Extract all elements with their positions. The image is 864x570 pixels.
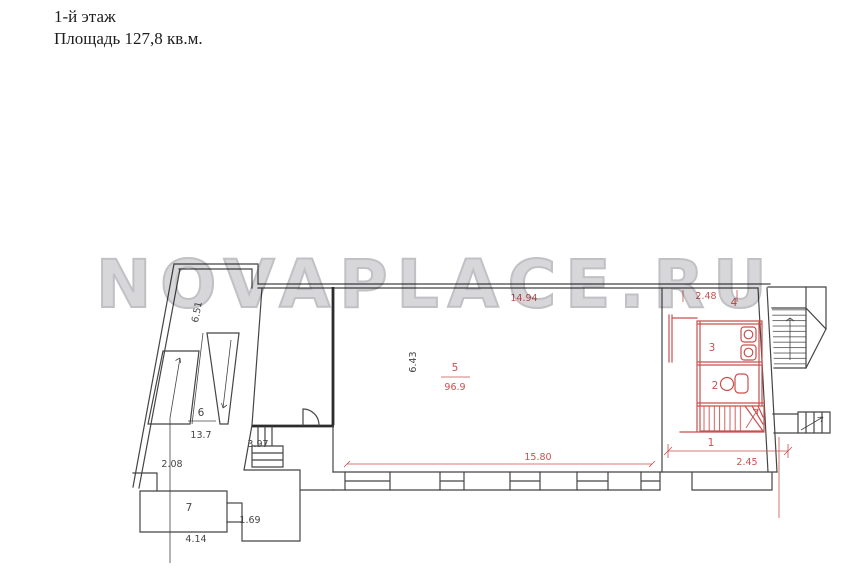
window — [440, 472, 464, 490]
window — [510, 472, 540, 490]
sink-icon — [741, 345, 756, 360]
door-arc — [303, 409, 319, 425]
window — [641, 472, 660, 490]
watermark: NOVAPLACE.RU — [96, 246, 768, 323]
stair-direction-arrow — [801, 417, 823, 430]
room-label: 7 — [186, 502, 193, 514]
window — [345, 472, 390, 490]
exterior-staircase — [768, 287, 830, 433]
window — [577, 472, 608, 490]
labels: 6.51 6.43 3.97 2.08 1.69 4.14 6 13.7 7 5… — [161, 291, 757, 545]
room-label: 2 — [712, 380, 719, 392]
dimension-label: 6.43 — [408, 351, 419, 372]
room-label: 3 — [709, 342, 716, 354]
room-label: 6 — [198, 407, 205, 419]
dimension-label: 4.14 — [185, 534, 206, 545]
dimension-label: 2.08 — [161, 459, 182, 470]
sink-icon — [741, 327, 756, 342]
dimension-label: 2.45 — [736, 457, 757, 468]
bottom-window-wall — [345, 472, 660, 490]
dimension-label: 15.80 — [524, 452, 551, 463]
dimension-label: 1.69 — [239, 515, 260, 526]
room-label: 5 — [452, 362, 459, 374]
room-area-label: 96.9 — [444, 382, 465, 393]
stair-direction-arrow-up — [170, 358, 181, 418]
stair-direction-arrow — [746, 409, 758, 428]
room-label: 1 — [708, 437, 715, 449]
room-7-outline — [140, 491, 227, 532]
left-staircase — [148, 333, 239, 424]
stair-direction-arrow-down — [222, 340, 232, 408]
dimension-label: 3.97 — [247, 439, 268, 450]
floor-plan-page: 1-й этаж Площадь 127,8 кв.м. — [0, 0, 864, 570]
red-interior-staircase — [700, 406, 763, 431]
room-area-label: 13.7 — [190, 430, 211, 441]
toilet-icon — [721, 374, 749, 393]
